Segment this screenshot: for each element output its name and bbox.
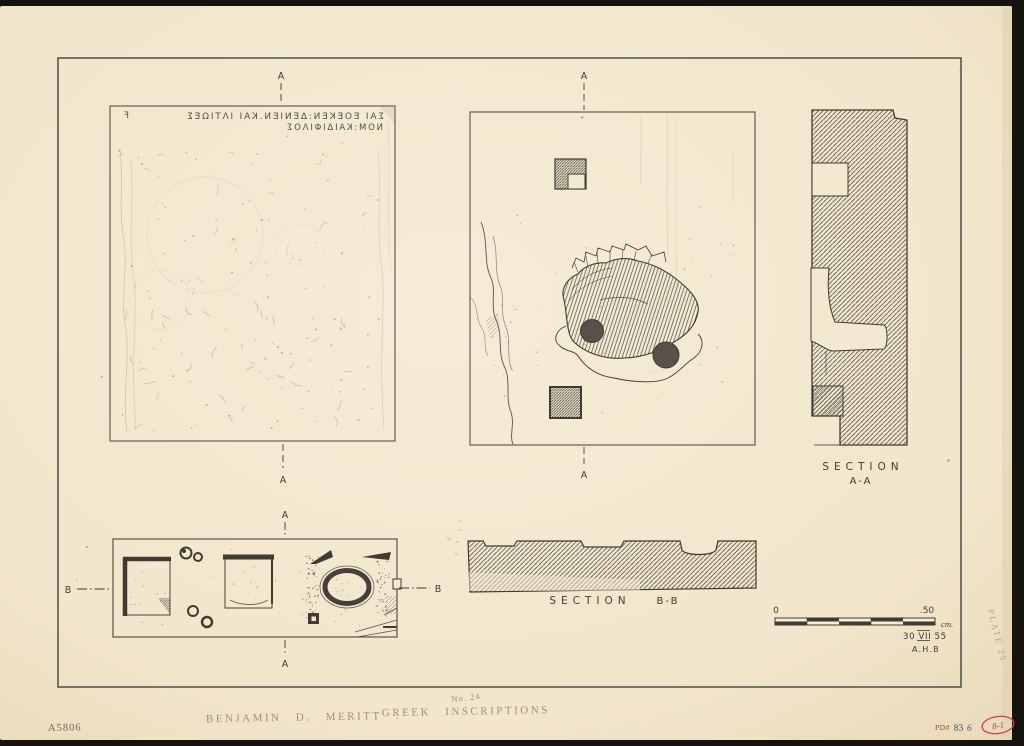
scale-unit: cm. [941,619,953,629]
marker-a-plan-bottom: A [282,659,289,670]
section-bb-label: SECTION [549,595,630,607]
marker-a-plan-top: A [282,510,289,521]
plate-photo: ΣΑΙ ΕΟΕΚΕΝ:ΔΕΝΙΕΝ.ΚΑΙ ΙΛΤΙΩΕΣ ΝΟΜ:ΚΑΙΔΙΦ… [0,0,1024,746]
negative-number: A5806 [48,722,82,734]
inscription-edge-mark: Ϝ [122,111,129,121]
cutting-square-lower [550,387,581,418]
plan-edge-notch [393,579,401,589]
paper-edge-shadow [1002,6,1012,740]
marker-b-left: B [65,585,72,596]
section-aa-lower-cutting [813,386,843,416]
section-aa-drawing [811,110,907,445]
section-aa-label: SECTION [822,461,903,473]
marker-a-bottom-left: A [280,475,287,486]
pd-digits: 83 [954,723,964,734]
scale-start: 0 [773,606,779,616]
draftsman-initials: A.H.B [912,645,940,654]
marker-a-bottom-center: A [581,470,588,481]
plan-small-square-center [312,617,317,622]
marker-a-top-left: A [278,71,285,82]
pd-suffix: 6 [967,724,972,734]
dowel-hole-left [581,320,604,343]
section-aa-notch [812,163,848,196]
marker-b-right: B [435,584,442,595]
inscription-line-1: ΣΑΙ ΕΟΕΚΕΝ:ΔΕΝΙΕΝ.ΚΑΙ ΙΛΤΙΩΕΣ [185,112,384,122]
pd-prefix: PD# [935,723,950,732]
cutting-square-upper [555,159,586,189]
section-aa-name: A-A [850,476,873,487]
scale-end: .50 [920,606,935,616]
section-bb-name: B-B [657,596,680,607]
red-code-text: 8-1 [991,720,1004,732]
dowel-hole-right [653,342,679,368]
plan-hole-dot [182,549,186,553]
inscription-line-2: ΝΟΜ:ΚΑΙΔΙΦΙΛΟΣ [285,123,383,133]
marker-a-top-center: A [581,71,588,82]
